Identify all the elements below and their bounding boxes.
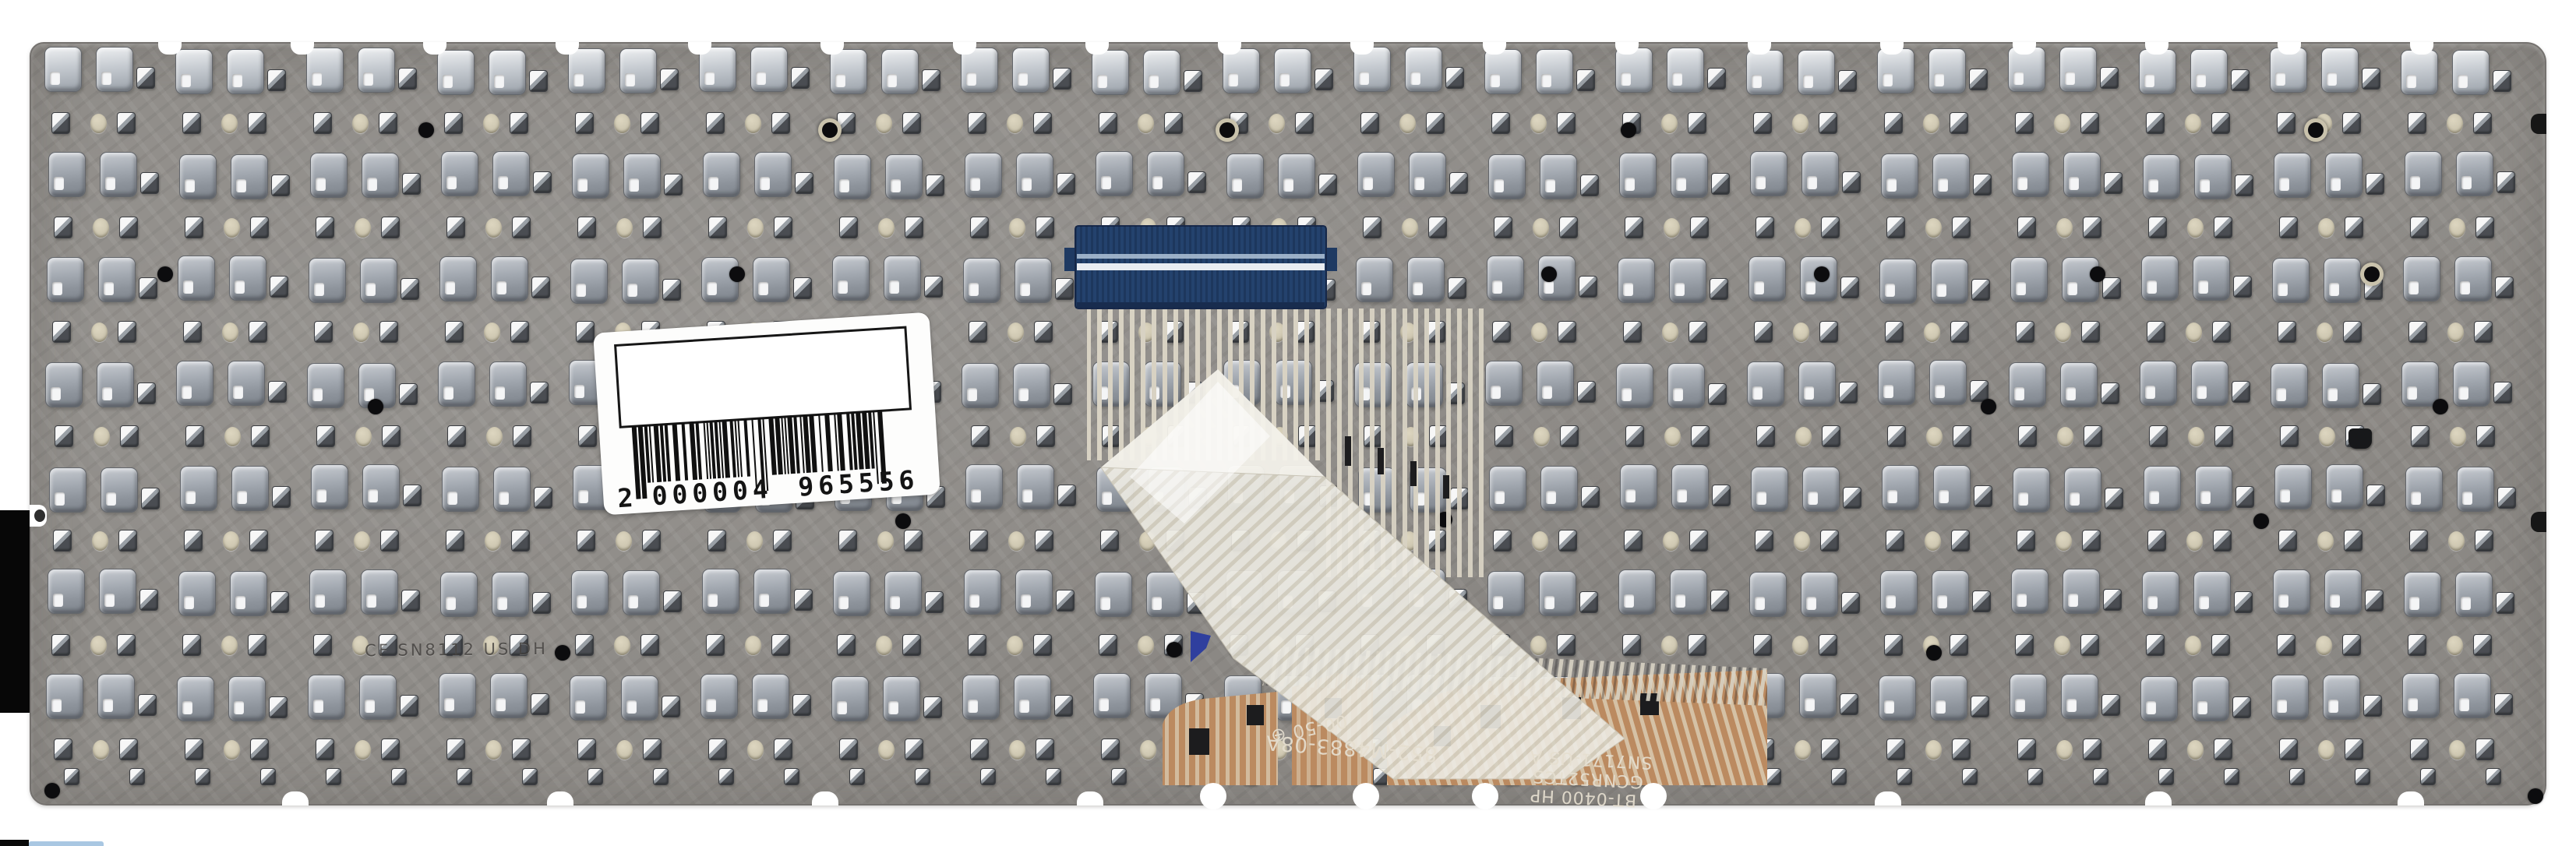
ribbon-cable-assembly: 00-50 ⊕ 852-M4883-08A SN7171-US A GCNR52… bbox=[0, 0, 2576, 846]
stiffener-stripe-white bbox=[1077, 263, 1325, 270]
blue-flag-mark bbox=[1191, 631, 1211, 662]
photo-canvas: { "scene": { "description": "Rear side o… bbox=[0, 0, 2576, 846]
ffc-stiffener bbox=[1064, 226, 1337, 308]
stiffener-stripe-light-blue bbox=[1077, 254, 1325, 259]
